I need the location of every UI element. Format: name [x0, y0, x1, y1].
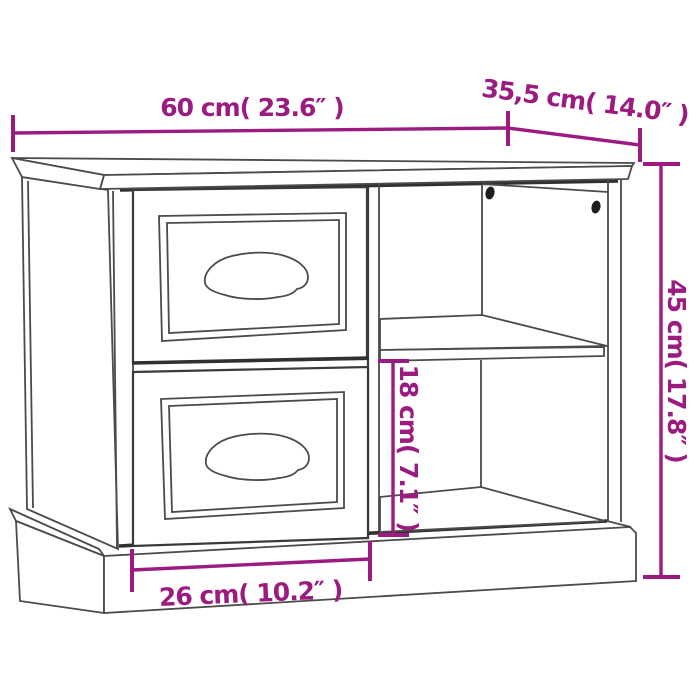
dimension-width-label: 60 cm( 23.6″ ): [160, 93, 343, 122]
screw-hole-icon: [484, 186, 496, 201]
middle-shelf: [380, 315, 607, 361]
dimension-depth-label: 35,5 cm( 14.0″ ): [480, 74, 690, 130]
nightstand-dimension-diagram: 60 cm( 23.6″ ) 35,5 cm( 14.0″ ) 45 cm( 1…: [0, 0, 700, 700]
cabinet-top: [12, 158, 634, 189]
dimension-width: 60 cm( 23.6″ ): [13, 93, 508, 152]
bottom-drawer: [133, 367, 368, 546]
screw-hole-icon: [590, 200, 602, 215]
top-drawer-handle: [205, 253, 308, 299]
dimension-height: 45 cm( 17.8″ ): [643, 164, 691, 577]
left-side-panel: [22, 177, 118, 549]
dimension-height-label: 45 cm( 17.8″ ): [662, 279, 691, 462]
bottom-drawer-handle: [206, 434, 309, 480]
dimension-compartment-height-label: 18 cm( 7.1″ ): [394, 364, 423, 531]
top-drawer: [133, 187, 367, 363]
dimension-depth: 35,5 cm( 14.0″ ): [480, 74, 690, 162]
dimension-diagram-canvas: 60 cm( 23.6″ ) 35,5 cm( 14.0″ ) 45 cm( 1…: [0, 0, 700, 700]
